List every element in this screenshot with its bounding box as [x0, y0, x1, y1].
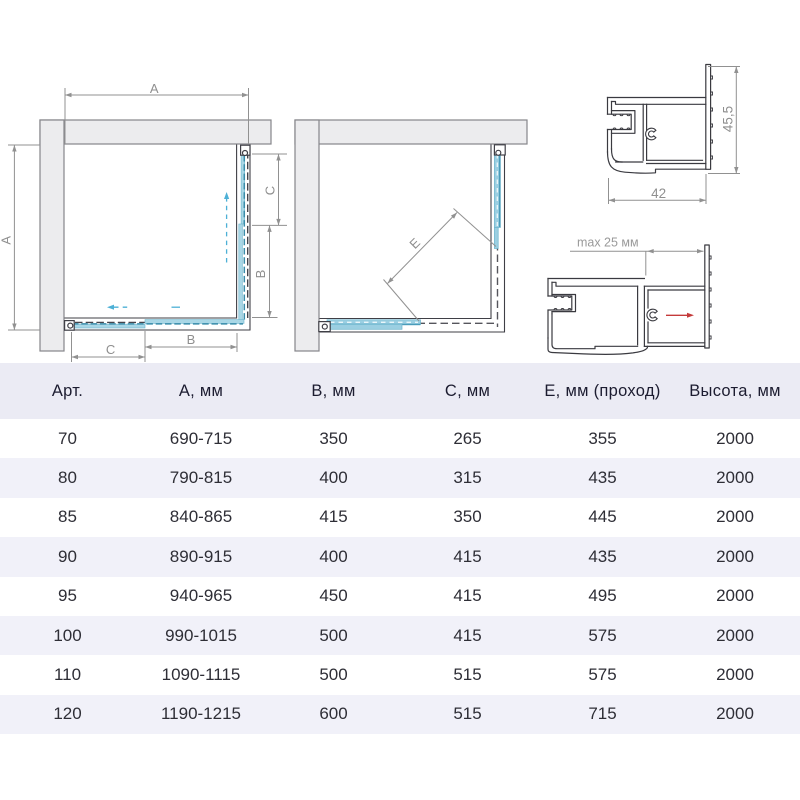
svg-text:42: 42 [651, 186, 666, 201]
svg-text:A: A [0, 236, 14, 245]
svg-text:B: B [187, 332, 196, 347]
svg-text:A: A [150, 81, 159, 96]
svg-text:C: C [106, 342, 115, 357]
svg-text:45,5: 45,5 [720, 106, 735, 132]
svg-text:B: B [253, 270, 268, 279]
svg-text:C: C [263, 186, 278, 195]
svg-text:max 25 мм: max 25 мм [577, 236, 639, 250]
